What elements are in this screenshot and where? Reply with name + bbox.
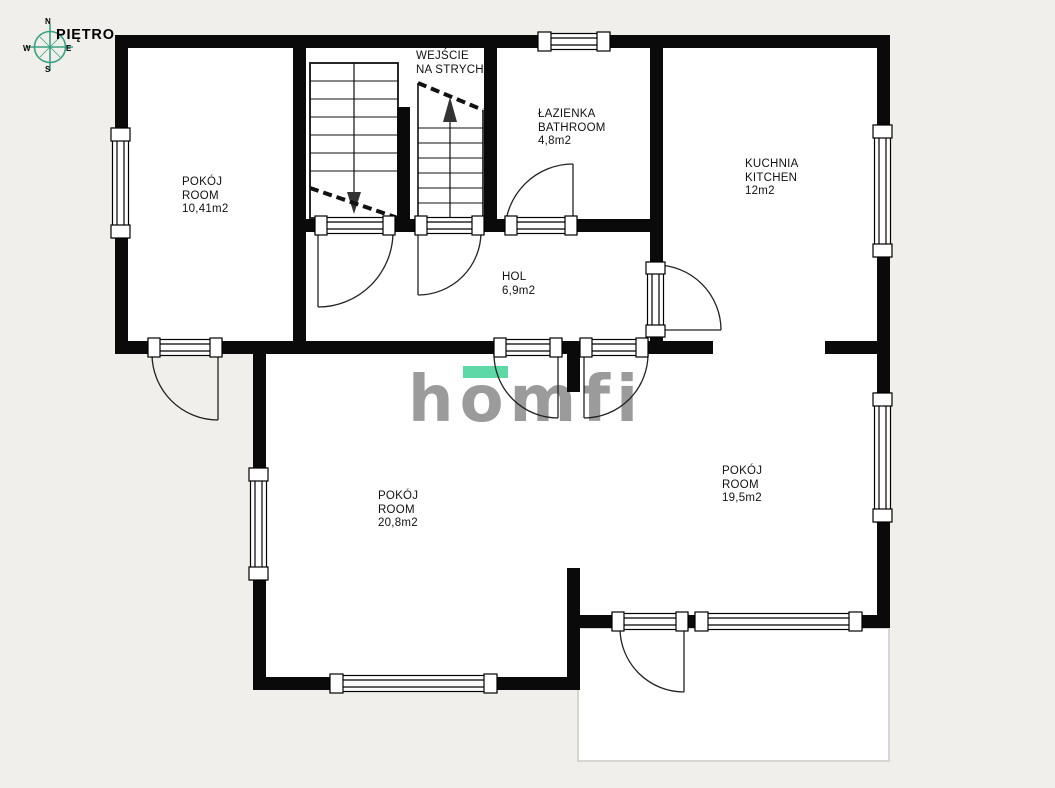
window-kitchen-right <box>873 125 892 257</box>
door-frame-bathroom <box>505 216 577 235</box>
window-top <box>538 32 610 51</box>
watermark-logo: homfi <box>408 363 644 437</box>
page-title: PIĘTRO <box>56 27 115 43</box>
door-frame-stairs-to-hall <box>315 216 395 235</box>
door-frame-kitchen <box>646 262 665 337</box>
balcony <box>578 628 889 761</box>
room-label-lower-left: POKÓJ ROOM 20,8m2 <box>378 490 418 531</box>
door-frame-hall-to-room-lower-right <box>580 338 648 357</box>
compass-south-label: S <box>45 65 50 74</box>
compass-west-label: W <box>23 44 31 53</box>
compass-east-label: E <box>66 44 71 53</box>
compass-north-label: N <box>45 17 51 26</box>
window-room-lower-right-side <box>873 393 892 522</box>
room-label-upper-left: POKÓJ ROOM 10,41m2 <box>182 176 229 217</box>
window-room-lower-left-bottom <box>330 674 497 693</box>
room-label-hall: HOL 6,9m2 <box>502 271 535 298</box>
window-room-lower-right-bottom <box>695 612 862 631</box>
window-room-lower-left-side <box>249 468 268 580</box>
door-frame-hall-to-stairwell <box>415 216 484 235</box>
room-label-bathroom: ŁAZIENKA BATHROOM 4,8m2 <box>538 108 606 149</box>
floor-plan: homfi <box>0 0 1055 788</box>
door-frame-exterior-upper-left <box>148 338 222 357</box>
watermark-logo-accent <box>463 366 508 378</box>
window-left-upper <box>111 128 130 238</box>
stairs-down-flight <box>310 63 398 218</box>
watermark-logo-text: homfi <box>408 363 644 437</box>
room-label-kitchen: KUCHNIA KITCHEN 12m2 <box>745 158 799 199</box>
room-label-lower-right: POKÓJ ROOM 19,5m2 <box>722 465 762 506</box>
door-frame-balcony <box>612 612 688 631</box>
door-frame-hall-to-room-lower-left <box>494 338 562 357</box>
room-label-attic-entrance: WEJŚCIE NA STRYCH <box>416 50 484 77</box>
